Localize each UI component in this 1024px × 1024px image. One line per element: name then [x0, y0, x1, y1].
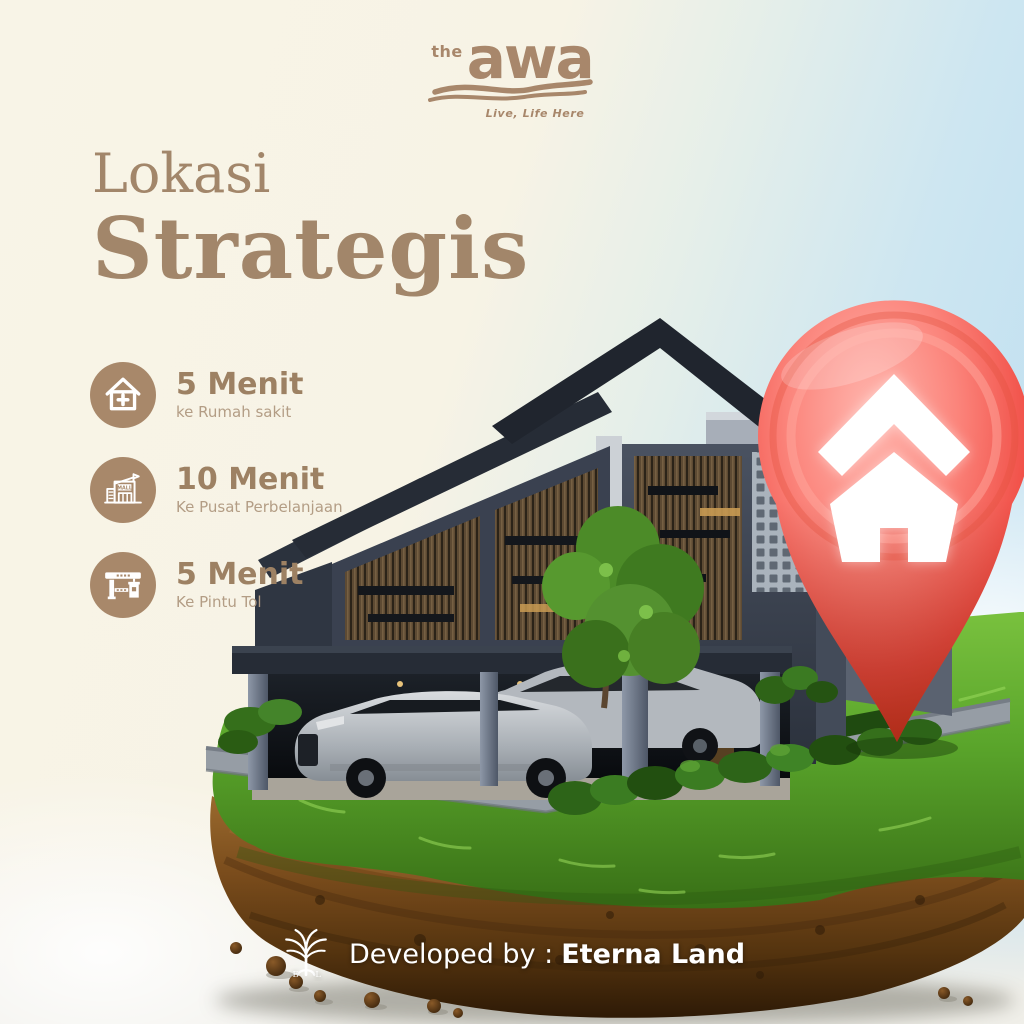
feature-time: 5 Menit [176, 559, 304, 591]
hospital-house-icon [90, 362, 156, 428]
page-title: Lokasi Strategis [92, 146, 529, 291]
brand-the: the [431, 42, 462, 61]
mall-icon: MALL [90, 457, 156, 523]
feature-item-hospital: 5 Menit ke Rumah sakit [90, 362, 343, 428]
feature-list: 5 Menit ke Rumah sakit MALL [90, 362, 343, 647]
eterna-land-tree-icon: E L [279, 927, 333, 981]
title-line1: Lokasi [92, 146, 529, 203]
title-line2: Strategis [92, 207, 529, 291]
mall-sign-text: MALL [117, 485, 132, 491]
feature-place: ke Rumah sakit [176, 403, 304, 421]
brand-tagline: Live, Life Here [46, 107, 1024, 120]
monogram-right: L [315, 969, 321, 979]
developer-name: Eterna Land [561, 939, 745, 970]
feature-place: Ke Pintu Tol [176, 593, 304, 611]
feature-time: 10 Menit [176, 464, 343, 496]
brand-name: awa [467, 34, 593, 83]
footer-credit: E L Developed by :Eterna Land [0, 927, 1024, 981]
monogram-left: E [292, 969, 298, 979]
feature-time: 5 Menit [176, 369, 304, 401]
feature-item-mall: MALL 10 Menit Ke Pusat Perbelanjaan [90, 457, 343, 523]
poster: the awa Live, Life Here Lokasi Strategis… [0, 0, 1024, 1024]
brand-logo: the awa Live, Life Here [0, 34, 1024, 120]
feature-item-toll: 5 Menit Ke Pintu Tol [90, 552, 343, 618]
toll-gate-icon [90, 552, 156, 618]
feature-place: Ke Pusat Perbelanjaan [176, 498, 343, 516]
developed-by-label: Developed by : [349, 939, 553, 970]
